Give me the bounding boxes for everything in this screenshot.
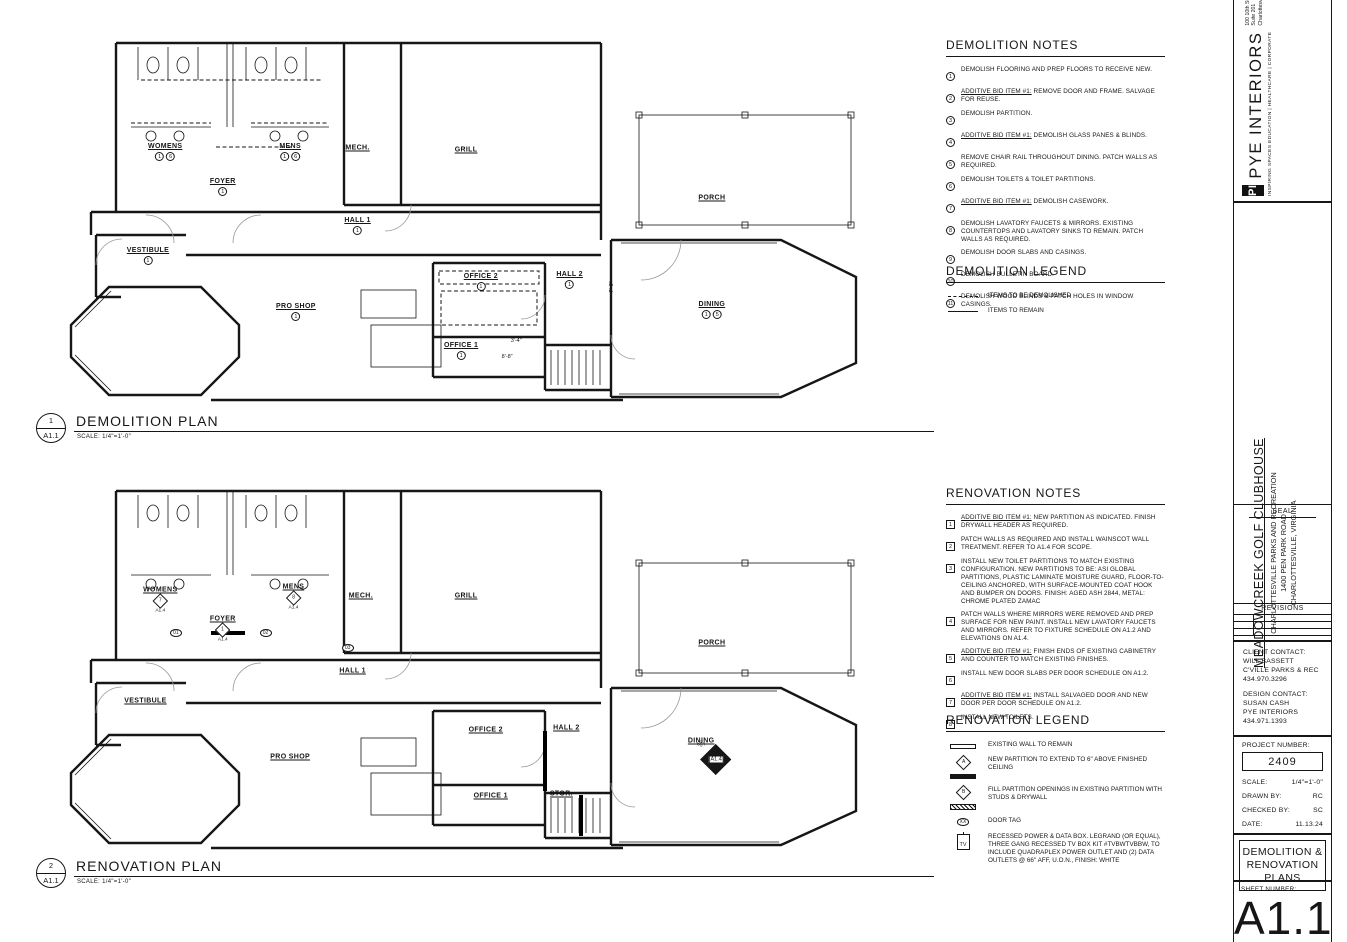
note-item: 5REMOVE CHAIR RAIL THROUGHOUT DINING. PA… [946, 154, 1165, 171]
renovation-plan-titlebar: 2 A1.1 RENOVATION PLAN SCALE: 1/4"=1'-0" [36, 858, 936, 888]
plan-title: RENOVATION PLAN [74, 858, 934, 877]
scale-label: SCALE: [1242, 779, 1267, 786]
note-item: 3DEMOLISH PARTITION. [946, 110, 1165, 127]
existing-wall-icon [946, 741, 980, 749]
design-org: PYE INTERIORS [1243, 708, 1322, 717]
plan-scale: SCALE: 1/4"=1'-0" [77, 434, 934, 440]
design-phone: 434.971.1393 [1243, 717, 1322, 726]
legend-item: EXISTING WALL TO REMAIN [946, 741, 1165, 749]
legend-item: ANEW PARTITION TO EXTEND TO 6" ABOVE FIN… [946, 756, 1165, 779]
project-number: 2409 [1242, 752, 1323, 771]
design-contact-label: DESIGN CONTACT: [1243, 690, 1322, 699]
demolition-notes-title: DEMOLITION NOTES [946, 38, 1165, 57]
fill-partition-icon: B [946, 786, 980, 810]
renovation-notes: RENOVATION NOTES 1ADDITIVE BID ITEM #1: … [946, 486, 1165, 736]
legend-item: BFILL PARTITION OPENINGS IN EXISTING PAR… [946, 786, 1165, 810]
seal-section: SEAL [1234, 505, 1331, 604]
note-item: 2ADDITIVE BID ITEM #1: REMOVE DOOR AND F… [946, 88, 1165, 105]
renovation-notes-title: RENOVATION NOTES [946, 486, 1165, 505]
note-item: 7ADDITIVE BID ITEM #1: DEMOLISH CASEWORK… [946, 198, 1165, 215]
plan-title: DEMOLITION PLAN [74, 413, 934, 432]
firm-name: PYE INTERIORS [1248, 32, 1265, 179]
revision-row [1234, 615, 1331, 622]
note-item: 6INSTALL NEW DOOR SLABS PER DOOR SCHEDUL… [946, 670, 1165, 687]
sheet-number-section: SHEET NUMBER: A1.1 [1234, 882, 1331, 942]
contacts-section: CLIENT CONTACT: WILL BASSETT C'VILLE PAR… [1234, 642, 1331, 737]
client-name: WILL BASSETT [1243, 657, 1322, 666]
solid-line-icon [946, 307, 980, 312]
date-value: 11.13.24 [1295, 821, 1323, 828]
scale-value: 1/4"=1'-0" [1292, 779, 1323, 786]
sheet-number: A1.1 [1234, 893, 1331, 942]
legend-item: XXDOOR TAG [946, 817, 1165, 826]
new-partition-icon: A [946, 756, 980, 779]
plan-number-badge: 2 A1.1 [36, 858, 66, 888]
renovation-notes-list: 1ADDITIVE BID ITEM #1: NEW PARTITION AS … [946, 514, 1165, 731]
plan-scale: SCALE: 1/4"=1'-0" [77, 879, 934, 885]
renovation-legend-title: RENOVATION LEGEND [946, 713, 1165, 732]
renovation-legend: RENOVATION LEGEND EXISTING WALL TO REMAI… [946, 713, 1165, 872]
client-contact-label: CLIENT CONTACT: [1243, 648, 1322, 657]
revisions-label: REVISIONS [1234, 604, 1331, 615]
note-item: 4ADDITIVE BID ITEM #1: DEMOLISH GLASS PA… [946, 132, 1165, 149]
renovation-legend-list: EXISTING WALL TO REMAINANEW PARTITION TO… [946, 741, 1165, 865]
tv-box-icon: TV [946, 833, 980, 850]
demolition-plan-drawing [60, 35, 882, 415]
revisions-section: REVISIONS [1234, 604, 1331, 642]
note-item: 8DEMOLISH LAVATORY FAUCETS & MIRRORS. EX… [946, 220, 1165, 244]
project-section: MEADOWCREEK GOLF CLUBHOUSE CHARLOTTESVIL… [1234, 203, 1331, 505]
note-item: 3INSTALL NEW TOILET PARTITIONS TO MATCH … [946, 558, 1165, 606]
plan-sheet-ref: A1.1 [37, 874, 65, 888]
note-item: 4PATCH WALLS WHERE MIRRORS WERE REMOVED … [946, 611, 1165, 643]
sheet-title-section: DEMOLITION & RENOVATION PLANS [1234, 835, 1331, 882]
title-block: PI PYE INTERIORS 100 10th Street, NE Sui… [1233, 0, 1332, 942]
firm-address: 100 10th Street, NE Suite 201 Charlottes… [1245, 0, 1265, 26]
plan-number: 1 [37, 414, 65, 429]
note-item: 1DEMOLISH FLOORING AND PREP FLOORS TO RE… [946, 66, 1165, 83]
plan-number: 2 [37, 859, 65, 874]
drawn-by-label: DRAWN BY: [1242, 793, 1282, 800]
note-item: 5ADDITIVE BID ITEM #1: FINISH ENDS OF EX… [946, 648, 1165, 665]
demolition-legend-list: ITEMS TO BE DEMOLISHEDITEMS TO REMAIN [946, 292, 1165, 315]
firm-section: PI PYE INTERIORS 100 10th Street, NE Sui… [1234, 0, 1331, 203]
note-item: 7ADDITIVE BID ITEM #1: INSTALL SALVAGED … [946, 692, 1165, 709]
note-item: 6DEMOLISH TOILETS & TOILET PARTITIONS. [946, 176, 1165, 193]
drawing-sheet: WOMENS16MENS16FOYER1MECH.GRILLPORCHHALL … [0, 0, 1347, 942]
revision-row [1234, 622, 1331, 629]
revision-row [1234, 629, 1331, 636]
design-name: SUSAN CASH [1243, 699, 1322, 708]
plan-sheet-ref: A1.1 [37, 429, 65, 443]
note-item: 2PATCH WALLS AS REQUIRED AND INSTALL WAI… [946, 536, 1165, 553]
plan-number-badge: 1 A1.1 [36, 413, 66, 443]
client-phone: 434.970.3296 [1243, 675, 1322, 684]
dashed-line-icon [946, 292, 980, 297]
checked-by-label: CHECKED BY: [1242, 807, 1290, 814]
client-org: C'VILLE PARKS & REC [1243, 666, 1322, 675]
demolition-legend-title: DEMOLITION LEGEND [946, 264, 1165, 283]
door-tag-icon: XX [946, 817, 980, 826]
drawn-by-value: RC [1313, 793, 1323, 800]
demolition-plan-titlebar: 1 A1.1 DEMOLITION PLAN SCALE: 1/4"=1'-0" [36, 413, 936, 443]
date-label: DATE: [1242, 821, 1263, 828]
project-number-label: PROJECT NUMBER: [1242, 742, 1323, 749]
firm-tagline: INSPIRING SPACES EDUCATION | HEALTHCARE … [1268, 6, 1273, 196]
legend-item: ITEMS TO BE DEMOLISHED [946, 292, 1165, 300]
legend-item: ITEMS TO REMAIN [946, 307, 1165, 315]
checked-by-value: SC [1313, 807, 1323, 814]
project-data-section: PROJECT NUMBER: 2409 SCALE:1/4"=1'-0" DR… [1234, 737, 1331, 835]
legend-item: TVRECESSED POWER & DATA BOX. LEGRAND (OR… [946, 833, 1165, 865]
seal-label: SEAL [1249, 505, 1317, 518]
note-item: 1ADDITIVE BID ITEM #1: NEW PARTITION AS … [946, 514, 1165, 531]
demolition-legend: DEMOLITION LEGEND ITEMS TO BE DEMOLISHED… [946, 264, 1165, 322]
pye-interiors-logo: PI [1242, 185, 1264, 196]
renovation-plan-drawing [60, 483, 882, 863]
